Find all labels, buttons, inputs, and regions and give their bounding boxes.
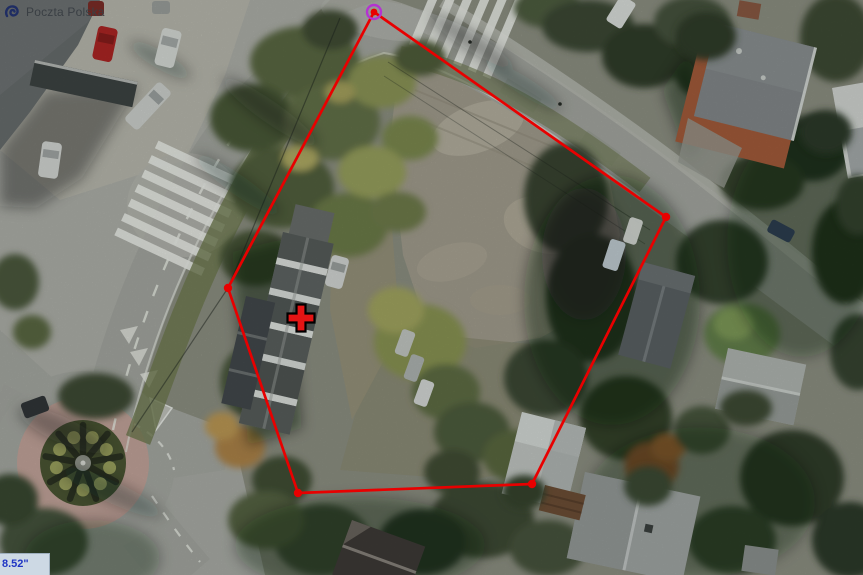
cross-glyph <box>288 305 315 332</box>
parcel-vertex-handle[interactable] <box>371 9 378 16</box>
parcel-boundary-polygon[interactable] <box>228 12 666 493</box>
parcel-overlay-layer <box>0 0 863 575</box>
parcel-vertex-handle[interactable] <box>528 480 536 488</box>
parcel-vertex-handle[interactable] <box>224 284 232 292</box>
poczta-polska-logo-icon <box>3 3 21 21</box>
map-viewport[interactable]: Poczta Polska 8.52" <box>0 0 863 575</box>
coordinate-value: 8.52" <box>2 558 29 570</box>
coordinate-readout: 8.52" <box>0 553 50 575</box>
point-marker-cross[interactable] <box>288 305 315 332</box>
parcel-vertex-handles <box>224 5 670 497</box>
watermark-label: Poczta Polska <box>26 5 105 19</box>
parcel-vertex-handle[interactable] <box>294 489 302 497</box>
watermark: Poczta Polska <box>3 3 105 21</box>
parcel-vertex-handle[interactable] <box>662 213 670 221</box>
